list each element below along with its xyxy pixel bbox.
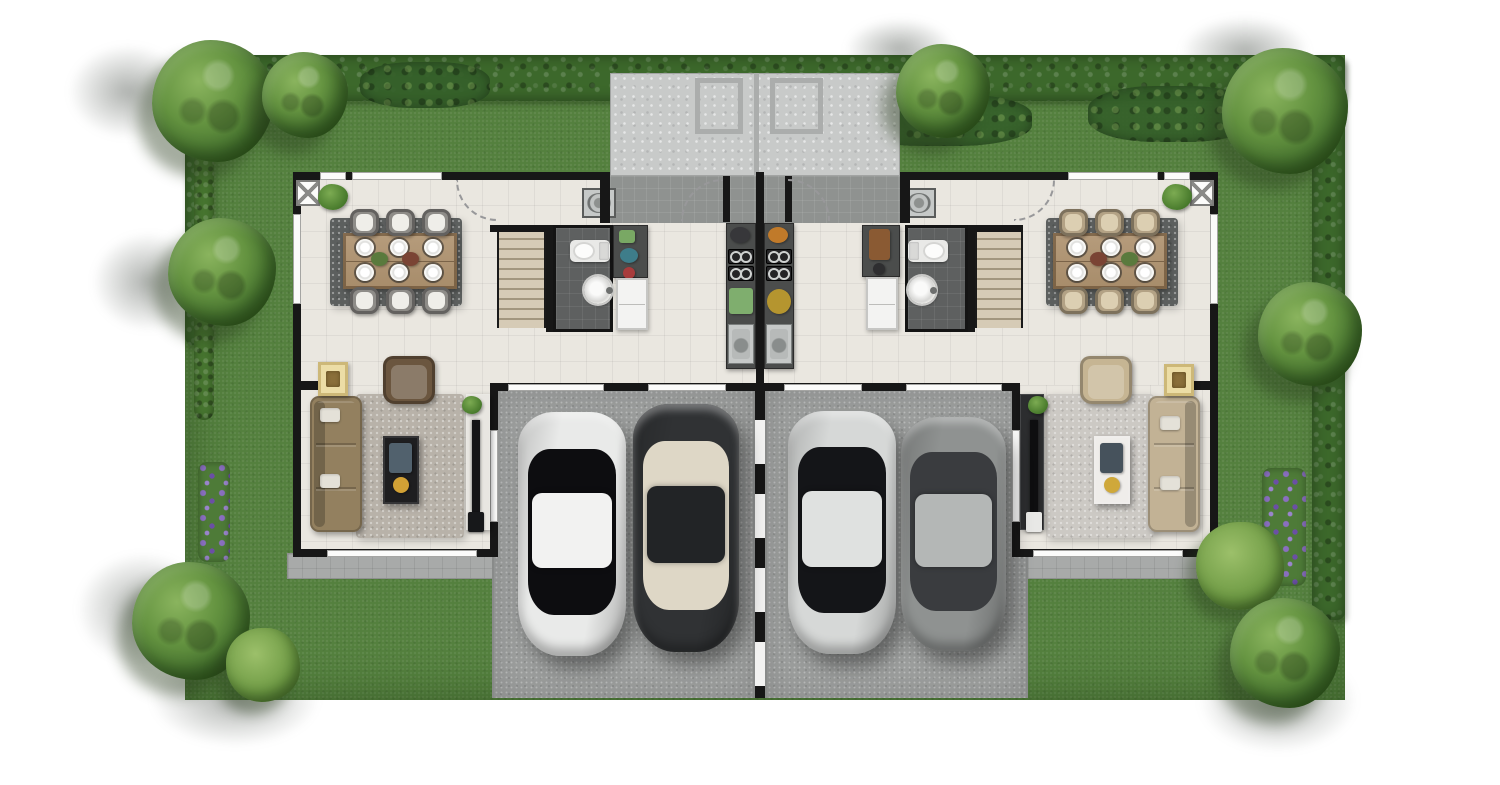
place-setting xyxy=(424,264,442,281)
ac-unit-right xyxy=(1190,180,1214,206)
bush xyxy=(226,628,300,702)
window-living-left xyxy=(490,430,498,522)
window-front-left xyxy=(352,172,442,180)
place-setting xyxy=(356,239,374,256)
shrub-border xyxy=(360,62,490,108)
window-front-right xyxy=(1068,172,1158,180)
lamp-table-right xyxy=(1164,364,1194,396)
armchair-left xyxy=(383,356,435,404)
cooktop-right xyxy=(766,266,792,281)
porch-stub-right xyxy=(900,172,910,223)
place-setting xyxy=(1136,264,1154,281)
stair-head-wall-left xyxy=(490,225,553,232)
window-side-left xyxy=(293,214,301,304)
cooktop-left xyxy=(728,266,754,281)
throw-pillow xyxy=(1160,476,1180,490)
tree xyxy=(1222,48,1348,174)
basin-left xyxy=(584,276,612,304)
place-setting xyxy=(1136,239,1154,256)
toilet-left xyxy=(570,240,610,262)
dining-chair xyxy=(1131,209,1160,236)
party-wall xyxy=(756,172,764,390)
kitchen-flowers xyxy=(767,289,791,314)
stairs-right xyxy=(975,230,1023,328)
table-tray xyxy=(389,443,412,473)
refrigerator-right xyxy=(866,277,898,330)
window-front-right xyxy=(1164,172,1190,180)
walkway-inlay xyxy=(770,78,823,134)
ac-unit-left xyxy=(296,180,320,206)
car-gray xyxy=(901,417,1006,651)
window-rear-left xyxy=(327,550,477,557)
dining-chair xyxy=(386,287,415,314)
dining-chair xyxy=(350,287,379,314)
media-device xyxy=(1026,512,1042,532)
television-left xyxy=(472,420,480,512)
place-setting xyxy=(390,264,408,281)
window-carport-right xyxy=(906,384,1002,391)
car-black xyxy=(633,404,739,652)
dining-chair xyxy=(1059,287,1088,314)
car-white xyxy=(518,412,626,656)
dining-chair xyxy=(422,209,451,236)
toilet-right xyxy=(908,240,948,262)
basin-right xyxy=(908,276,936,304)
porch-pier-left xyxy=(723,176,730,222)
dining-chair xyxy=(1095,209,1124,236)
place-setting xyxy=(1068,239,1086,256)
driveway-divider-fence xyxy=(755,390,765,698)
place-setting xyxy=(424,239,442,256)
stair-head-wall-right xyxy=(968,225,1023,232)
car-silver xyxy=(788,411,896,654)
tree xyxy=(152,40,274,162)
entry-porch xyxy=(610,176,900,223)
tree xyxy=(1230,598,1340,708)
walkway-seam xyxy=(754,73,759,176)
tree xyxy=(1258,282,1362,386)
kitchen-sink-left xyxy=(728,324,754,364)
window-carport-right xyxy=(784,384,862,391)
counter-dish xyxy=(873,263,885,275)
cutting-board xyxy=(869,229,890,260)
media-device xyxy=(468,512,484,532)
cooktop-left xyxy=(728,249,754,264)
kitchen-bowl xyxy=(730,227,750,243)
bush xyxy=(1196,522,1284,610)
window-carport-left xyxy=(648,384,726,391)
dining-chair xyxy=(422,287,451,314)
place-setting xyxy=(1068,264,1086,281)
gold-bowl xyxy=(1104,477,1120,493)
counter-bowl xyxy=(620,248,638,263)
table-centerpiece xyxy=(1121,252,1138,266)
tree xyxy=(896,44,990,138)
stair-side-wall-left xyxy=(546,232,553,332)
throw-pillow xyxy=(320,408,340,422)
window-rear-right xyxy=(1033,550,1183,557)
table-centerpiece xyxy=(402,252,419,266)
fruit-bowl xyxy=(768,227,788,243)
tree xyxy=(168,218,276,326)
counter-dish xyxy=(619,230,635,243)
kitchen-towels xyxy=(729,288,753,314)
duplex-floor-plan xyxy=(0,0,1500,785)
stair-side-wall-right xyxy=(968,232,975,332)
dining-chair xyxy=(1095,287,1124,314)
armchair-right xyxy=(1080,356,1132,404)
dining-chair xyxy=(1131,287,1160,314)
flowerbed-left xyxy=(198,462,230,562)
lamp-table-left xyxy=(318,362,348,396)
cooktop-right xyxy=(766,249,792,264)
dining-chair xyxy=(386,209,415,236)
table-centerpiece xyxy=(1090,252,1107,266)
gold-bowl xyxy=(393,477,409,493)
throw-pillow xyxy=(1160,416,1180,430)
window-front-left xyxy=(320,172,346,180)
place-setting xyxy=(356,264,374,281)
refrigerator-left xyxy=(616,278,648,330)
window-living-right xyxy=(1012,430,1020,522)
porch-stub-left xyxy=(600,172,610,223)
dining-chair xyxy=(350,209,379,236)
place-setting xyxy=(1102,264,1120,281)
dining-chair xyxy=(1059,209,1088,236)
walkway-inlay xyxy=(695,78,743,134)
window-carport-left xyxy=(508,384,604,391)
kitchen-sink-right xyxy=(766,324,792,364)
table-centerpiece xyxy=(371,252,388,266)
table-tray xyxy=(1100,443,1123,473)
stairs-left xyxy=(497,230,546,328)
tree xyxy=(262,52,348,138)
washing-machine-left xyxy=(582,188,616,218)
window-side-right xyxy=(1210,214,1218,304)
television-right xyxy=(1030,420,1038,512)
throw-pillow xyxy=(320,474,340,488)
